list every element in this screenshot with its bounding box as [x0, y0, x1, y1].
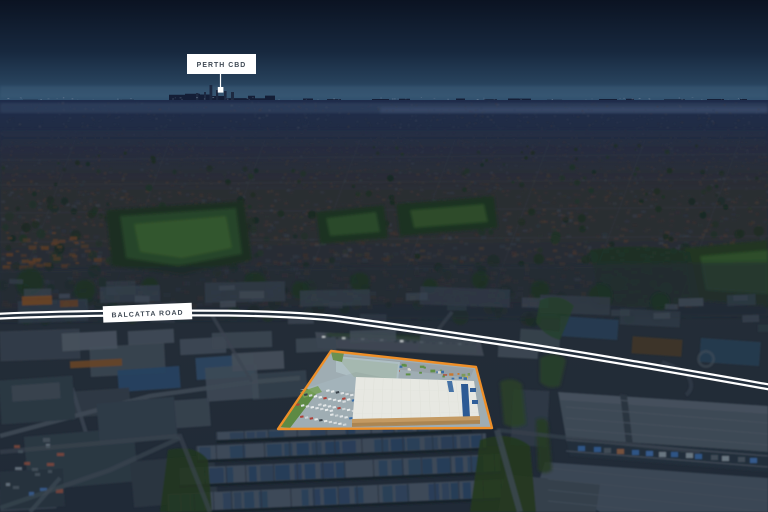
- svg-text:PERTH CBD: PERTH CBD: [197, 62, 247, 69]
